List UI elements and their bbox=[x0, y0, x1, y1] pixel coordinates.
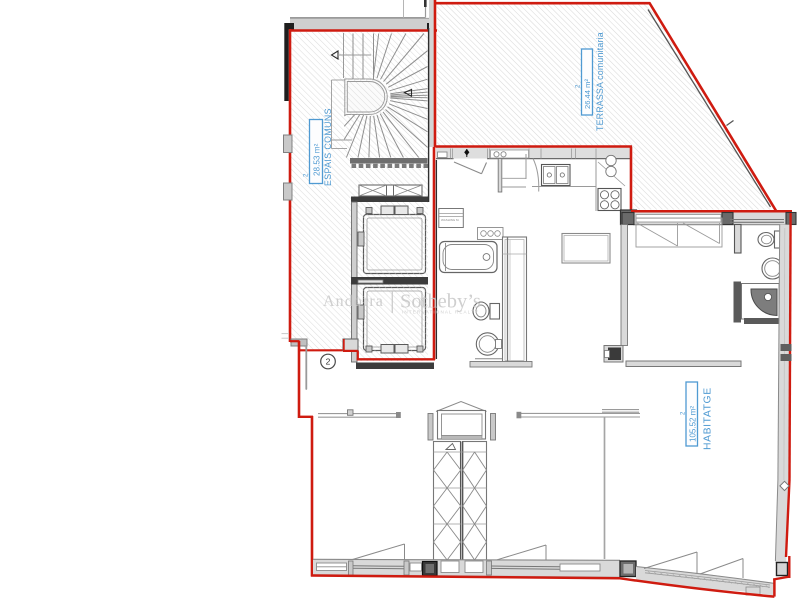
svg-text:INTERNATIONAL REALTY: INTERNATIONAL REALTY bbox=[402, 310, 479, 315]
svg-text:26.44 m²: 26.44 m² bbox=[583, 79, 592, 109]
svg-text:WASHING M.: WASHING M. bbox=[441, 218, 460, 222]
svg-text:105.52 m²: 105.52 m² bbox=[688, 406, 697, 442]
svg-text:ESPAIS COMUNS: ESPAIS COMUNS bbox=[323, 108, 333, 186]
svg-text:TERRASSA comunitaria: TERRASSA comunitaria bbox=[595, 32, 605, 131]
svg-text:HABITATGE: HABITATGE bbox=[703, 387, 714, 450]
svg-text:2: 2 bbox=[326, 357, 331, 367]
svg-text:28.53 m²: 28.53 m² bbox=[312, 143, 321, 176]
svg-text:Andorra: Andorra bbox=[323, 293, 384, 310]
